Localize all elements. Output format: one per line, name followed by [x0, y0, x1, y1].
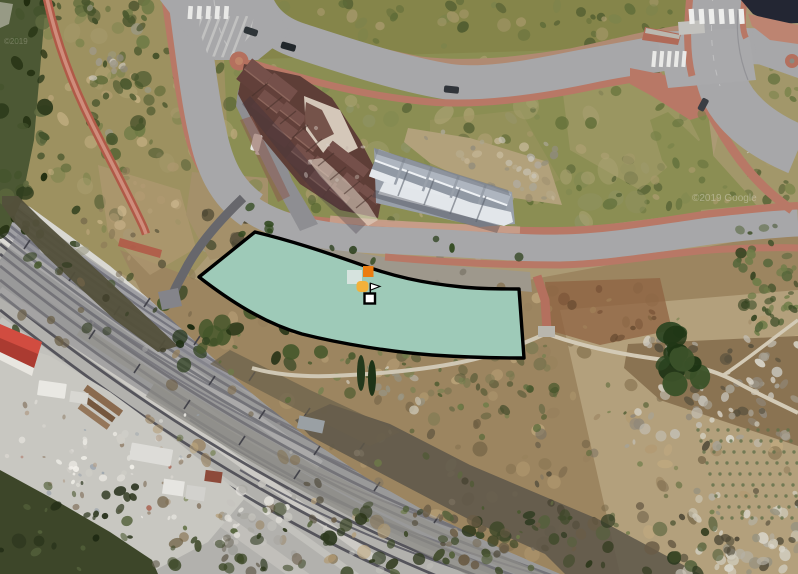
svg-text:©2019 Google: ©2019 Google — [692, 193, 757, 204]
svg-text:©2019: ©2019 — [4, 37, 28, 46]
